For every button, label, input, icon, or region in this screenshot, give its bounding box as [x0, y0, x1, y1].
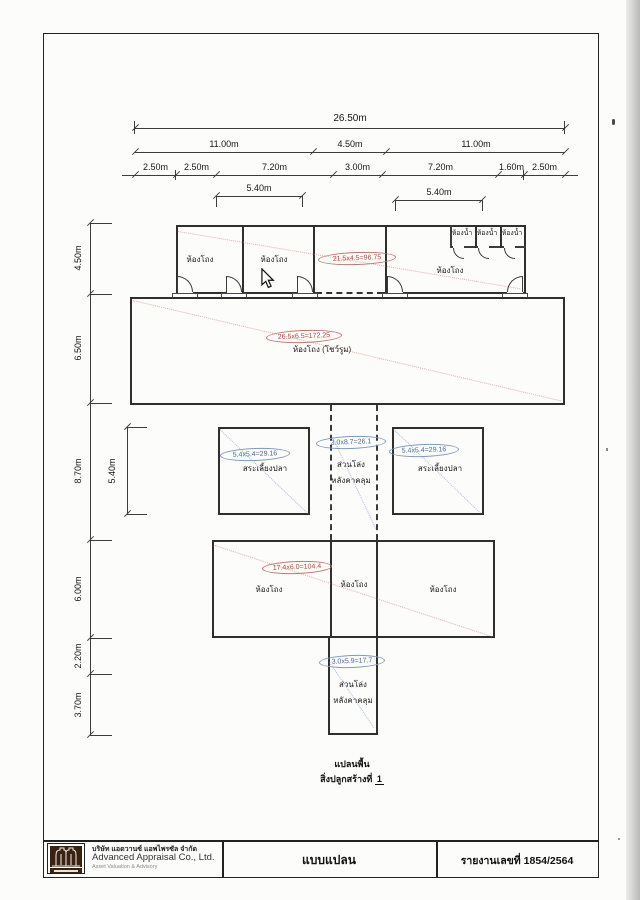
- dim-row2-label: 4.50m: [326, 139, 374, 149]
- titleblock-divider: [222, 840, 224, 877]
- room-label-hall: ห้องโถง: [413, 585, 473, 594]
- plan-caption-line2: สิ่งปลูกสร้างที่ 1: [292, 772, 412, 786]
- room-label-open-covered: หลังคาคลุม: [318, 696, 388, 705]
- scanned-plan-sheet: 26.50m 11.00m 4.50m 11.00m 2.50m 2.50m 7…: [0, 0, 640, 900]
- dim-ext: [523, 170, 524, 180]
- dim-row3-label: 2.50m: [176, 162, 217, 172]
- titleblock-divider: [436, 840, 438, 877]
- dim-stub: [90, 223, 112, 224]
- dim-ext: [216, 196, 217, 207]
- company-tagline: Asset Valuation & Advisory: [92, 864, 157, 870]
- dim-line: [135, 128, 565, 129]
- partition-wall: [242, 227, 244, 292]
- titleblock-top-line: [44, 840, 598, 842]
- corridor-dashed-wall: [376, 405, 378, 540]
- plan-caption-number: 1: [375, 774, 384, 785]
- dim-row2-label: 11.00m: [452, 139, 500, 149]
- dim-total-width: 26.50m: [320, 114, 380, 124]
- dim-ext: [302, 196, 303, 207]
- dim-line-vertical: [127, 427, 128, 515]
- dim-line: [122, 175, 578, 176]
- room-label-fish-pond: สระเลี้ยงปลา: [400, 464, 480, 473]
- room-label-hall: ห้องโถง: [172, 255, 228, 264]
- dashed-wall: [316, 292, 383, 294]
- company-logo: [47, 843, 85, 874]
- building-logo-icon: [50, 846, 82, 867]
- report-number: รายงานเลขที่ 1854/2564: [446, 852, 588, 869]
- dim-row4-label: 5.40m: [239, 183, 279, 193]
- dim-left-label: 6.00m: [73, 569, 83, 609]
- dim-left-label: 6.50m: [73, 328, 83, 368]
- room-label-hall: ห้องโถง: [246, 255, 302, 264]
- dim-stub: [127, 514, 147, 515]
- partition-wall: [330, 540, 332, 638]
- scan-speck: [612, 119, 615, 125]
- dim-stub: [90, 674, 112, 675]
- dim-left-label: 2.20m: [73, 636, 83, 676]
- room-label-open-covered: ส่วนโล่ง: [323, 680, 383, 689]
- partition-wall: [313, 227, 315, 292]
- room-label-hall: ห้องโถง: [324, 580, 384, 589]
- mouse-cursor-icon: [261, 268, 275, 289]
- dim-line: [395, 200, 483, 201]
- dim-row3-label: 2.50m: [135, 162, 176, 172]
- dim-ext: [175, 170, 176, 180]
- dim-line: [135, 152, 565, 153]
- logo-name-band: [50, 868, 82, 873]
- partition-wall: [376, 540, 378, 638]
- dim-row3-label: 2.50m: [524, 162, 565, 172]
- dim-stub: [90, 403, 112, 404]
- company-name-english: Advanced Appraisal Co., Ltd.: [92, 852, 215, 863]
- dim-left-label: 3.70m: [73, 685, 83, 725]
- dim-stub: [127, 427, 147, 428]
- dim-pond-label: 5.40m: [107, 451, 117, 491]
- room-label-open-covered: ส่วนโล่ง: [321, 460, 381, 469]
- dim-left-label: 8.70m: [73, 451, 83, 491]
- dim-stub: [90, 540, 112, 541]
- room-label-showroom: ห้องโถง (โชว์รูม): [272, 345, 372, 354]
- dim-stub: [90, 294, 112, 295]
- scan-speck: [618, 838, 620, 840]
- plan-caption-line1: แปลนพื้น: [292, 757, 412, 771]
- dim-stub: [90, 638, 112, 639]
- dim-row2-label: 11.00m: [200, 139, 248, 149]
- dim-line-vertical: [90, 223, 91, 735]
- room-label-fish-pond: สระเลี้ยงปลา: [225, 464, 305, 473]
- room-label-hall: ห้องโถง: [420, 266, 480, 275]
- plan-caption-text: สิ่งปลูกสร้างที่: [320, 774, 372, 784]
- corridor-dashed-wall: [330, 405, 332, 540]
- scan-edge-shadow: [626, 0, 640, 900]
- dim-stub: [90, 735, 112, 736]
- sheet-title: แบบแปลน: [242, 851, 416, 870]
- dim-line: [216, 196, 303, 197]
- scan-speck: [606, 448, 608, 451]
- dim-left-label: 4.50m: [73, 238, 83, 278]
- dim-ext: [482, 200, 483, 211]
- room-label-bathroom: ห้องน้ำ: [497, 229, 527, 238]
- dim-row4-label: 5.40m: [419, 187, 459, 197]
- dim-ext: [395, 200, 396, 211]
- room-label-hall: ห้องโถง: [239, 585, 299, 594]
- dim-row3-label: 7.20m: [254, 162, 295, 172]
- dim-row3-label: 3.00m: [337, 162, 378, 172]
- dim-row3-label: 7.20m: [420, 162, 461, 172]
